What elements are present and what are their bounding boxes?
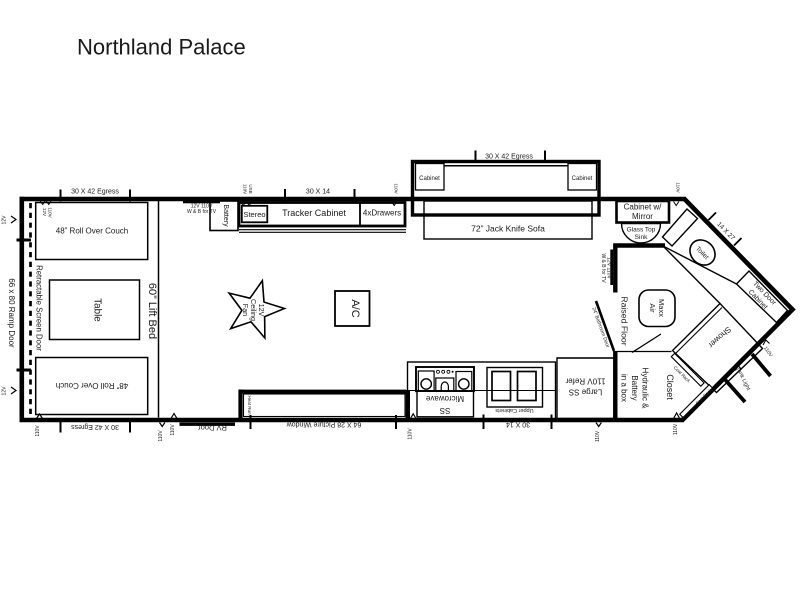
svg-text:W & B for TV: W & B for TV: [187, 209, 217, 215]
svg-text:Battery: Battery: [630, 375, 639, 400]
svg-text:Hydraulic &: Hydraulic &: [641, 368, 650, 410]
svg-text:Mirror: Mirror: [632, 212, 653, 221]
svg-text:110V: 110V: [158, 430, 164, 442]
svg-text:66 x 80 Ramp Door: 66 x 80 Ramp Door: [7, 278, 16, 348]
svg-text:110V: 110V: [170, 424, 176, 436]
svg-text:110V: 110V: [673, 423, 679, 435]
svg-text:30 X 42 Egress: 30 X 42 Egress: [485, 154, 533, 161]
svg-text:Retractable Screen Door: Retractable Screen Door: [35, 265, 44, 351]
svg-text:48” Roll Over Couch: 48” Roll Over Couch: [56, 227, 128, 236]
svg-text:110V: 110V: [35, 425, 41, 437]
svg-text:110V: 110V: [676, 182, 681, 192]
svg-text:12V: 12V: [2, 386, 8, 396]
svg-text:Microwave: Microwave: [425, 394, 464, 403]
svg-text:Large SS: Large SS: [569, 388, 602, 397]
svg-text:Cabinet: Cabinet: [572, 176, 593, 182]
svg-text:110V Refer: 110V Refer: [565, 377, 605, 386]
svg-text:Table: Table: [92, 298, 103, 322]
svg-text:Battery: Battery: [222, 204, 229, 227]
svg-text:12V 110VW & B for TV: 12V 110VW & B for TV: [600, 253, 612, 283]
svg-text:30 X 42 Egress: 30 X 42 Egress: [71, 189, 119, 196]
svg-text:Air: Air: [648, 303, 657, 313]
svg-text:Raised Floor: Raised Floor: [620, 296, 630, 345]
svg-text:Maxx: Maxx: [657, 299, 666, 317]
svg-text:Tracker Cabinet: Tracker Cabinet: [282, 208, 346, 218]
svg-text:110V: 110V: [394, 183, 399, 193]
svg-text:Northland Palace: Northland Palace: [77, 35, 246, 60]
svg-text:110V: 110V: [408, 428, 414, 440]
svg-text:48” Roll Over Couch: 48” Roll Over Couch: [56, 381, 128, 390]
svg-text:Glass Top: Glass Top: [627, 227, 656, 234]
svg-text:Sink: Sink: [635, 234, 648, 241]
svg-text:Cabinet: Cabinet: [419, 176, 440, 182]
svg-text:110V: 110V: [48, 207, 53, 217]
svg-text:SS: SS: [440, 406, 451, 415]
svg-text:Upper Cabinets: Upper Cabinets: [495, 407, 533, 413]
svg-text:Cabinet w/: Cabinet w/: [624, 203, 663, 212]
svg-text:4xDrawers: 4xDrawers: [363, 209, 401, 218]
svg-text:110V: 110V: [595, 430, 601, 442]
svg-text:Closet: Closet: [665, 374, 675, 400]
svg-text:Fan: Fan: [241, 304, 250, 316]
svg-text:30 X 42 Egress: 30 X 42 Egress: [71, 423, 119, 430]
svg-text:72” Jack Knife Sofa: 72” Jack Knife Sofa: [471, 224, 545, 234]
svg-text:Heat Run: Heat Run: [247, 395, 252, 415]
svg-text:64 X 28 Picture Window: 64 X 28 Picture Window: [286, 420, 362, 427]
svg-text:30 X 14: 30 X 14: [506, 420, 530, 427]
svg-text:Stereo: Stereo: [243, 210, 265, 219]
svg-text:in a box: in a box: [620, 374, 629, 402]
svg-text:A/C: A/C: [349, 299, 361, 317]
svg-text:30 X 14: 30 X 14: [306, 189, 330, 196]
svg-text:110V: 110V: [243, 184, 248, 194]
svg-text:12V: 12V: [2, 215, 8, 225]
svg-text:RV Door: RV Door: [198, 424, 227, 433]
svg-text:12V: 12V: [42, 208, 47, 216]
svg-text:60” Lift Bed: 60” Lift Bed: [146, 283, 158, 339]
svg-text:USB: USB: [248, 184, 253, 193]
